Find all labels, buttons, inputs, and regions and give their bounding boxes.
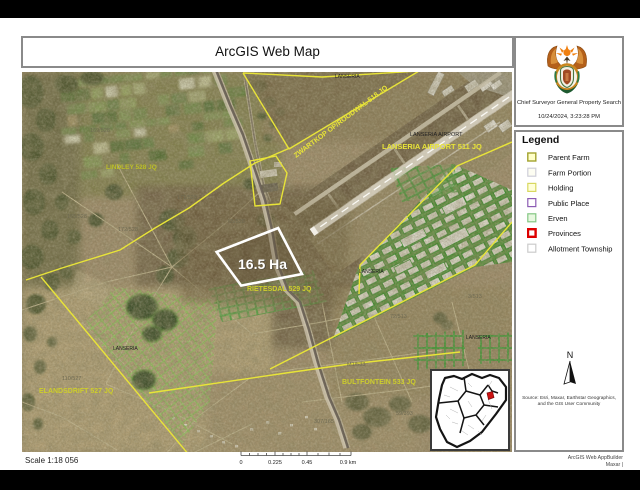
svg-text:169/528: 169/528: [90, 128, 110, 134]
svg-text:Public Place: Public Place: [548, 199, 589, 208]
svg-text:Erven: Erven: [548, 214, 568, 223]
svg-text:171/528: 171/528: [177, 195, 197, 201]
svg-text:0.45: 0.45: [302, 460, 313, 466]
svg-text:0.225: 0.225: [268, 460, 282, 466]
svg-text:110/527: 110/527: [62, 376, 81, 382]
svg-text:Farm Portion: Farm Portion: [548, 168, 591, 177]
svg-text:72/513: 72/513: [390, 314, 407, 320]
svg-text:3/513: 3/513: [468, 294, 482, 300]
svg-text:LANSERIA: LANSERIA: [335, 74, 360, 80]
svg-text:LANSERIA: LANSERIA: [359, 269, 384, 275]
svg-text:Parent Farm: Parent Farm: [548, 153, 590, 162]
svg-text:LANSERIA AIRPORT: LANSERIA AIRPORT: [410, 132, 463, 138]
svg-text:Holding: Holding: [548, 184, 573, 193]
svg-text:59/393: 59/393: [396, 411, 413, 417]
svg-text:N: N: [567, 350, 574, 360]
svg-text:BULTFONTEIN 533 JQ: BULTFONTEIN 533 JQ: [342, 379, 416, 386]
svg-text:RIETESDAL 529 JQ: RIETESDAL 529 JQ: [247, 286, 312, 293]
svg-text:LINDLEY 528 JQ: LINDLEY 528 JQ: [106, 164, 157, 171]
svg-text:165/528: 165/528: [67, 214, 87, 220]
svg-text:LANSERIA: LANSERIA: [113, 346, 138, 352]
svg-text:65/528: 65/528: [228, 219, 245, 225]
svg-text:0.9 km: 0.9 km: [340, 460, 357, 466]
svg-text:LANSERIA AIRPORT 511 JQ: LANSERIA AIRPORT 511 JQ: [382, 142, 482, 151]
svg-text:Allotment Township: Allotment Township: [548, 244, 612, 253]
svg-text:307/165: 307/165: [314, 419, 334, 425]
svg-text:0: 0: [239, 460, 242, 466]
svg-text:LANSERIA: LANSERIA: [466, 335, 491, 341]
svg-text:Provinces: Provinces: [548, 229, 581, 238]
svg-text:ELANDSDRIFT 527 JQ: ELANDSDRIFT 527 JQ: [39, 388, 114, 395]
svg-text:172/528: 172/528: [118, 227, 138, 233]
svg-text:16.5 Ha: 16.5 Ha: [238, 256, 287, 272]
svg-text:M1/533: M1/533: [347, 362, 365, 368]
